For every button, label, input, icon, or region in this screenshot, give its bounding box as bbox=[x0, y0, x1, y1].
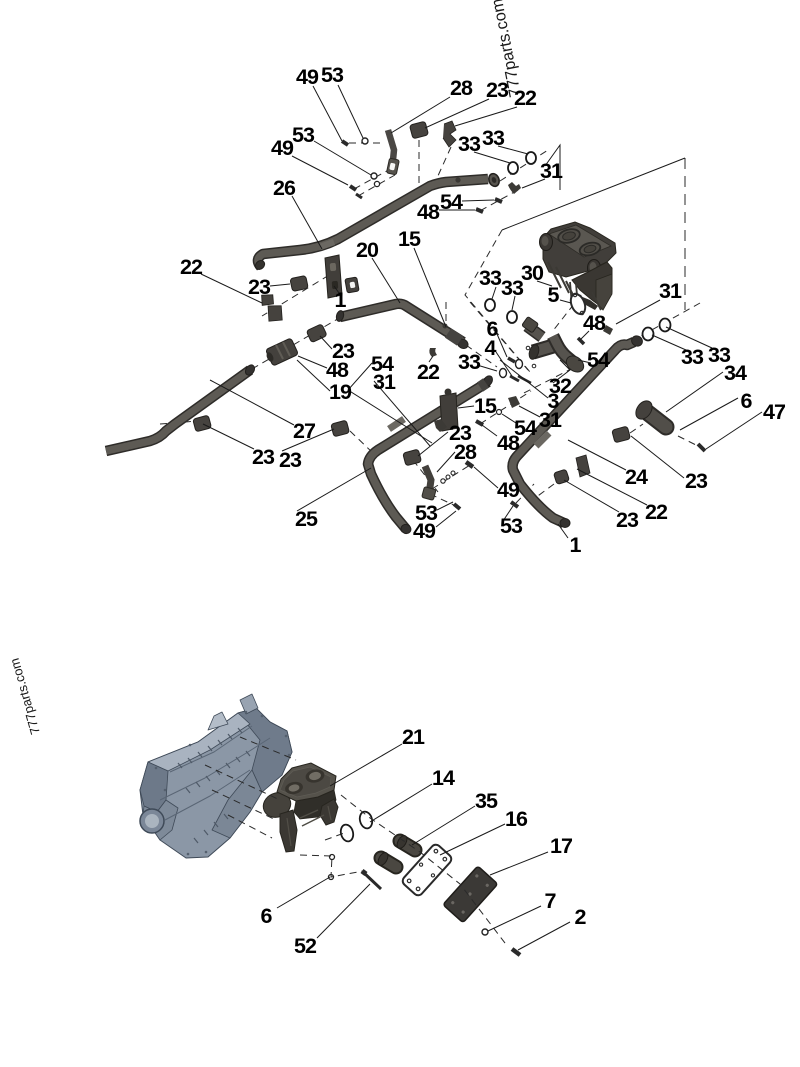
svg-text:49: 49 bbox=[497, 478, 520, 502]
svg-text:53: 53 bbox=[321, 63, 344, 87]
svg-text:54: 54 bbox=[440, 190, 463, 214]
svg-text:24: 24 bbox=[625, 465, 648, 489]
svg-text:16: 16 bbox=[505, 807, 528, 831]
svg-text:31: 31 bbox=[373, 370, 396, 394]
svg-text:33: 33 bbox=[482, 126, 505, 150]
svg-text:6: 6 bbox=[741, 389, 753, 413]
svg-text:31: 31 bbox=[539, 408, 562, 432]
svg-text:7: 7 bbox=[545, 889, 557, 913]
svg-text:33: 33 bbox=[681, 345, 704, 369]
svg-text:49: 49 bbox=[271, 136, 294, 160]
svg-text:35: 35 bbox=[475, 789, 498, 813]
svg-text:49: 49 bbox=[296, 65, 319, 89]
svg-text:48: 48 bbox=[326, 358, 349, 382]
svg-text:17: 17 bbox=[550, 834, 573, 858]
svg-text:54: 54 bbox=[587, 348, 610, 372]
svg-text:22: 22 bbox=[514, 86, 537, 110]
svg-text:23: 23 bbox=[616, 508, 639, 532]
svg-text:27: 27 bbox=[293, 419, 316, 443]
svg-text:53: 53 bbox=[500, 514, 523, 538]
svg-text:49: 49 bbox=[413, 519, 436, 543]
svg-text:31: 31 bbox=[540, 159, 563, 183]
svg-text:48: 48 bbox=[497, 431, 520, 455]
svg-text:22: 22 bbox=[645, 500, 668, 524]
svg-text:33: 33 bbox=[479, 266, 502, 290]
svg-text:23: 23 bbox=[685, 469, 708, 493]
svg-text:33: 33 bbox=[708, 343, 731, 367]
svg-text:33: 33 bbox=[458, 132, 481, 156]
svg-text:15: 15 bbox=[398, 227, 421, 251]
svg-text:33: 33 bbox=[501, 276, 524, 300]
svg-text:20: 20 bbox=[356, 238, 379, 262]
svg-text:53: 53 bbox=[292, 123, 315, 147]
svg-text:23: 23 bbox=[248, 275, 271, 299]
svg-text:25: 25 bbox=[295, 507, 318, 531]
svg-text:6: 6 bbox=[261, 904, 273, 928]
svg-text:23: 23 bbox=[252, 445, 275, 469]
svg-text:30: 30 bbox=[521, 261, 544, 285]
svg-text:22: 22 bbox=[180, 255, 203, 279]
svg-text:48: 48 bbox=[583, 311, 606, 335]
svg-text:28: 28 bbox=[450, 76, 473, 100]
svg-text:26: 26 bbox=[273, 176, 296, 200]
svg-text:1: 1 bbox=[570, 533, 582, 557]
svg-text:52: 52 bbox=[294, 934, 317, 958]
svg-text:21: 21 bbox=[402, 725, 425, 749]
svg-text:22: 22 bbox=[417, 360, 440, 384]
svg-text:23: 23 bbox=[279, 448, 302, 472]
svg-text:15: 15 bbox=[474, 394, 497, 418]
svg-text:4: 4 bbox=[485, 336, 497, 360]
svg-text:48: 48 bbox=[417, 200, 440, 224]
svg-text:23: 23 bbox=[486, 78, 509, 102]
svg-text:14: 14 bbox=[432, 766, 455, 790]
svg-text:1: 1 bbox=[335, 288, 347, 312]
svg-text:33: 33 bbox=[458, 350, 481, 374]
svg-text:47: 47 bbox=[763, 400, 786, 424]
svg-text:28: 28 bbox=[454, 440, 477, 464]
svg-text:5: 5 bbox=[548, 283, 560, 307]
svg-text:19: 19 bbox=[329, 380, 352, 404]
svg-text:2: 2 bbox=[575, 905, 587, 929]
svg-text:31: 31 bbox=[659, 279, 682, 303]
